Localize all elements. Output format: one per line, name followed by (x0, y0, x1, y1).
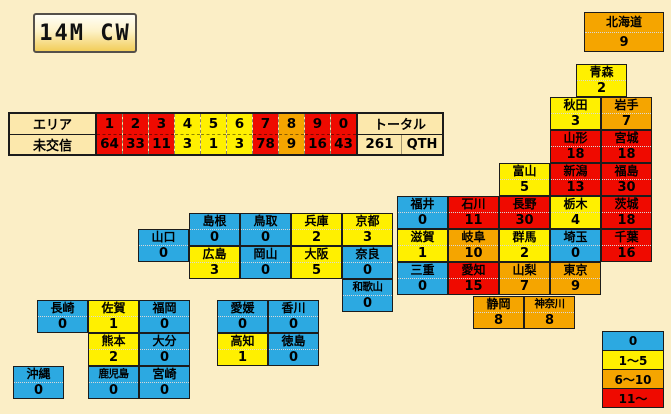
legend-row: 0 (603, 332, 663, 350)
prefecture-name: 広島 (190, 247, 239, 263)
prefecture-cell: 熊本2 (88, 333, 139, 366)
prefecture-unworked-count: 2 (577, 81, 626, 96)
prefecture-cell: 富山5 (499, 163, 550, 196)
prefecture-unworked-count: 30 (500, 213, 549, 228)
prefecture-name: 三重 (398, 263, 447, 279)
prefecture-name: 富山 (500, 164, 549, 180)
prefecture-name: 岐阜 (449, 230, 498, 246)
band-map-window: 14M CW エリア 未交信 1642333114351637788991604… (0, 0, 671, 414)
prefecture-cell: 千葉16 (601, 229, 652, 262)
prefecture-name: 愛知 (449, 263, 498, 279)
prefecture-name: 神奈川 (525, 297, 574, 313)
prefecture-unworked-count: 2 (89, 350, 138, 365)
legend-row: 6～10 (603, 369, 663, 388)
prefecture-cell: 東京9 (550, 262, 601, 295)
prefecture-name: 滋賀 (398, 230, 447, 246)
prefecture-unworked-count: 2 (500, 246, 549, 261)
prefecture-unworked-count: 0 (269, 350, 318, 365)
prefecture-unworked-count: 9 (585, 33, 663, 51)
prefecture-name: 岩手 (602, 98, 651, 114)
prefecture-name: 新潟 (551, 164, 600, 180)
prefecture-cell: 青森2 (576, 64, 627, 97)
prefecture-name: 鹿児島 (89, 367, 138, 383)
color-legend: 01～56～1011～ (602, 331, 664, 408)
prefecture-name: 大分 (140, 334, 189, 350)
prefecture-cell: 栃木4 (550, 196, 601, 229)
prefecture-name: 東京 (551, 263, 600, 279)
prefecture-cell: 滋賀1 (397, 229, 448, 262)
prefecture-unworked-count: 0 (14, 383, 63, 398)
prefecture-name: 愛媛 (218, 301, 267, 317)
prefecture-cell: 大阪5 (291, 246, 342, 279)
prefecture-cell: 徳島0 (268, 333, 319, 366)
prefecture-name: 石川 (449, 197, 498, 213)
prefecture-name: 奈良 (343, 247, 392, 263)
prefecture-cell: 愛媛0 (217, 300, 268, 333)
prefecture-unworked-count: 13 (551, 180, 600, 195)
prefecture-cell: 福岡0 (139, 300, 190, 333)
prefecture-cell: 宮崎0 (139, 366, 190, 399)
prefecture-cell: 静岡8 (473, 296, 524, 329)
prefecture-cell: 長崎0 (37, 300, 88, 333)
prefecture-cell: 広島3 (189, 246, 240, 279)
prefecture-name: 長野 (500, 197, 549, 213)
prefecture-unworked-count: 3 (551, 114, 600, 129)
prefecture-unworked-count: 0 (343, 263, 392, 278)
prefecture-name: 佐賀 (89, 301, 138, 317)
prefecture-cell: 兵庫2 (291, 213, 342, 246)
prefecture-cell: 宮城18 (601, 130, 652, 163)
prefecture-name: 京都 (343, 214, 392, 230)
prefecture-unworked-count: 0 (551, 246, 600, 261)
prefecture-cell: 群馬2 (499, 229, 550, 262)
prefecture-cell: 福島30 (601, 163, 652, 196)
prefecture-name: 長崎 (38, 301, 87, 317)
prefecture-unworked-count: 18 (551, 147, 600, 162)
prefecture-name: 福島 (602, 164, 651, 180)
prefecture-unworked-count: 1 (89, 317, 138, 332)
prefecture-cell: 秋田3 (550, 97, 601, 130)
prefecture-cell: 鹿児島0 (88, 366, 139, 399)
prefecture-name: 北海道 (585, 13, 663, 33)
prefecture-unworked-count: 8 (474, 313, 523, 328)
prefecture-name: 山形 (551, 131, 600, 147)
legend-row: 11～ (603, 388, 663, 407)
prefecture-unworked-count: 0 (190, 230, 239, 245)
prefecture-cell: 石川11 (448, 196, 499, 229)
prefecture-unworked-count: 0 (38, 317, 87, 332)
prefecture-unworked-count: 0 (218, 317, 267, 332)
prefecture-unworked-count: 0 (140, 350, 189, 365)
prefecture-unworked-count: 15 (449, 279, 498, 294)
prefecture-name: 静岡 (474, 297, 523, 313)
prefecture-cell: 山口0 (138, 229, 189, 262)
prefecture-cell: 北海道9 (584, 12, 664, 52)
prefecture-cell: 鳥取0 (240, 213, 291, 246)
prefecture-cell: 岡山0 (240, 246, 291, 279)
prefecture-name: 山口 (139, 230, 188, 246)
prefecture-name: 熊本 (89, 334, 138, 350)
prefecture-unworked-count: 8 (525, 313, 574, 328)
prefecture-unworked-count: 0 (269, 317, 318, 332)
prefecture-unworked-count: 0 (343, 296, 392, 311)
prefecture-unworked-count: 5 (292, 263, 341, 278)
prefecture-cell: 高知1 (217, 333, 268, 366)
japan-prefecture-map: 北海道9青森2秋田3岩手7山形18宮城18富山5新潟13福島30福井0石川11長… (0, 0, 671, 414)
prefecture-unworked-count: 3 (190, 263, 239, 278)
prefecture-unworked-count: 0 (89, 383, 138, 398)
prefecture-unworked-count: 0 (241, 263, 290, 278)
prefecture-unworked-count: 0 (398, 279, 447, 294)
prefecture-name: 群馬 (500, 230, 549, 246)
prefecture-name: 青森 (577, 65, 626, 81)
prefecture-cell: 岐阜10 (448, 229, 499, 262)
prefecture-unworked-count: 30 (602, 180, 651, 195)
prefecture-name: 大阪 (292, 247, 341, 263)
prefecture-unworked-count: 5 (500, 180, 549, 195)
prefecture-name: 沖縄 (14, 367, 63, 383)
prefecture-cell: 大分0 (139, 333, 190, 366)
prefecture-cell: 佐賀1 (88, 300, 139, 333)
prefecture-cell: 愛知15 (448, 262, 499, 295)
prefecture-cell: 和歌山0 (342, 279, 393, 312)
prefecture-name: 鳥取 (241, 214, 290, 230)
legend-row: 1～5 (603, 350, 663, 369)
prefecture-name: 香川 (269, 301, 318, 317)
prefecture-name: 宮崎 (140, 367, 189, 383)
prefecture-cell: 埼玉0 (550, 229, 601, 262)
prefecture-unworked-count: 10 (449, 246, 498, 261)
prefecture-name: 島根 (190, 214, 239, 230)
prefecture-cell: 奈良0 (342, 246, 393, 279)
prefecture-cell: 山梨7 (499, 262, 550, 295)
prefecture-cell: 福井0 (397, 196, 448, 229)
prefecture-cell: 香川0 (268, 300, 319, 333)
prefecture-name: 福井 (398, 197, 447, 213)
prefecture-cell: 三重0 (397, 262, 448, 295)
prefecture-cell: 神奈川8 (524, 296, 575, 329)
prefecture-unworked-count: 3 (343, 230, 392, 245)
prefecture-unworked-count: 7 (602, 114, 651, 129)
prefecture-cell: 沖縄0 (13, 366, 64, 399)
prefecture-name: 千葉 (602, 230, 651, 246)
prefecture-unworked-count: 11 (449, 213, 498, 228)
prefecture-cell: 山形18 (550, 130, 601, 163)
prefecture-unworked-count: 9 (551, 279, 600, 294)
prefecture-cell: 茨城18 (601, 196, 652, 229)
prefecture-cell: 岩手7 (601, 97, 652, 130)
prefecture-name: 山梨 (500, 263, 549, 279)
prefecture-name: 兵庫 (292, 214, 341, 230)
prefecture-name: 徳島 (269, 334, 318, 350)
prefecture-name: 茨城 (602, 197, 651, 213)
prefecture-unworked-count: 7 (500, 279, 549, 294)
prefecture-name: 栃木 (551, 197, 600, 213)
prefecture-unworked-count: 1 (398, 246, 447, 261)
prefecture-unworked-count: 1 (218, 350, 267, 365)
prefecture-name: 高知 (218, 334, 267, 350)
prefecture-cell: 長野30 (499, 196, 550, 229)
prefecture-name: 岡山 (241, 247, 290, 263)
prefecture-unworked-count: 16 (602, 246, 651, 261)
prefecture-cell: 京都3 (342, 213, 393, 246)
prefecture-cell: 新潟13 (550, 163, 601, 196)
prefecture-name: 秋田 (551, 98, 600, 114)
prefecture-unworked-count: 0 (140, 317, 189, 332)
prefecture-name: 宮城 (602, 131, 651, 147)
prefecture-unworked-count: 4 (551, 213, 600, 228)
prefecture-unworked-count: 0 (140, 383, 189, 398)
prefecture-unworked-count: 0 (398, 213, 447, 228)
prefecture-unworked-count: 2 (292, 230, 341, 245)
prefecture-name: 和歌山 (343, 280, 392, 296)
prefecture-unworked-count: 18 (602, 147, 651, 162)
prefecture-name: 福岡 (140, 301, 189, 317)
prefecture-cell: 島根0 (189, 213, 240, 246)
prefecture-unworked-count: 0 (139, 246, 188, 261)
prefecture-unworked-count: 0 (241, 230, 290, 245)
prefecture-unworked-count: 18 (602, 213, 651, 228)
prefecture-name: 埼玉 (551, 230, 600, 246)
